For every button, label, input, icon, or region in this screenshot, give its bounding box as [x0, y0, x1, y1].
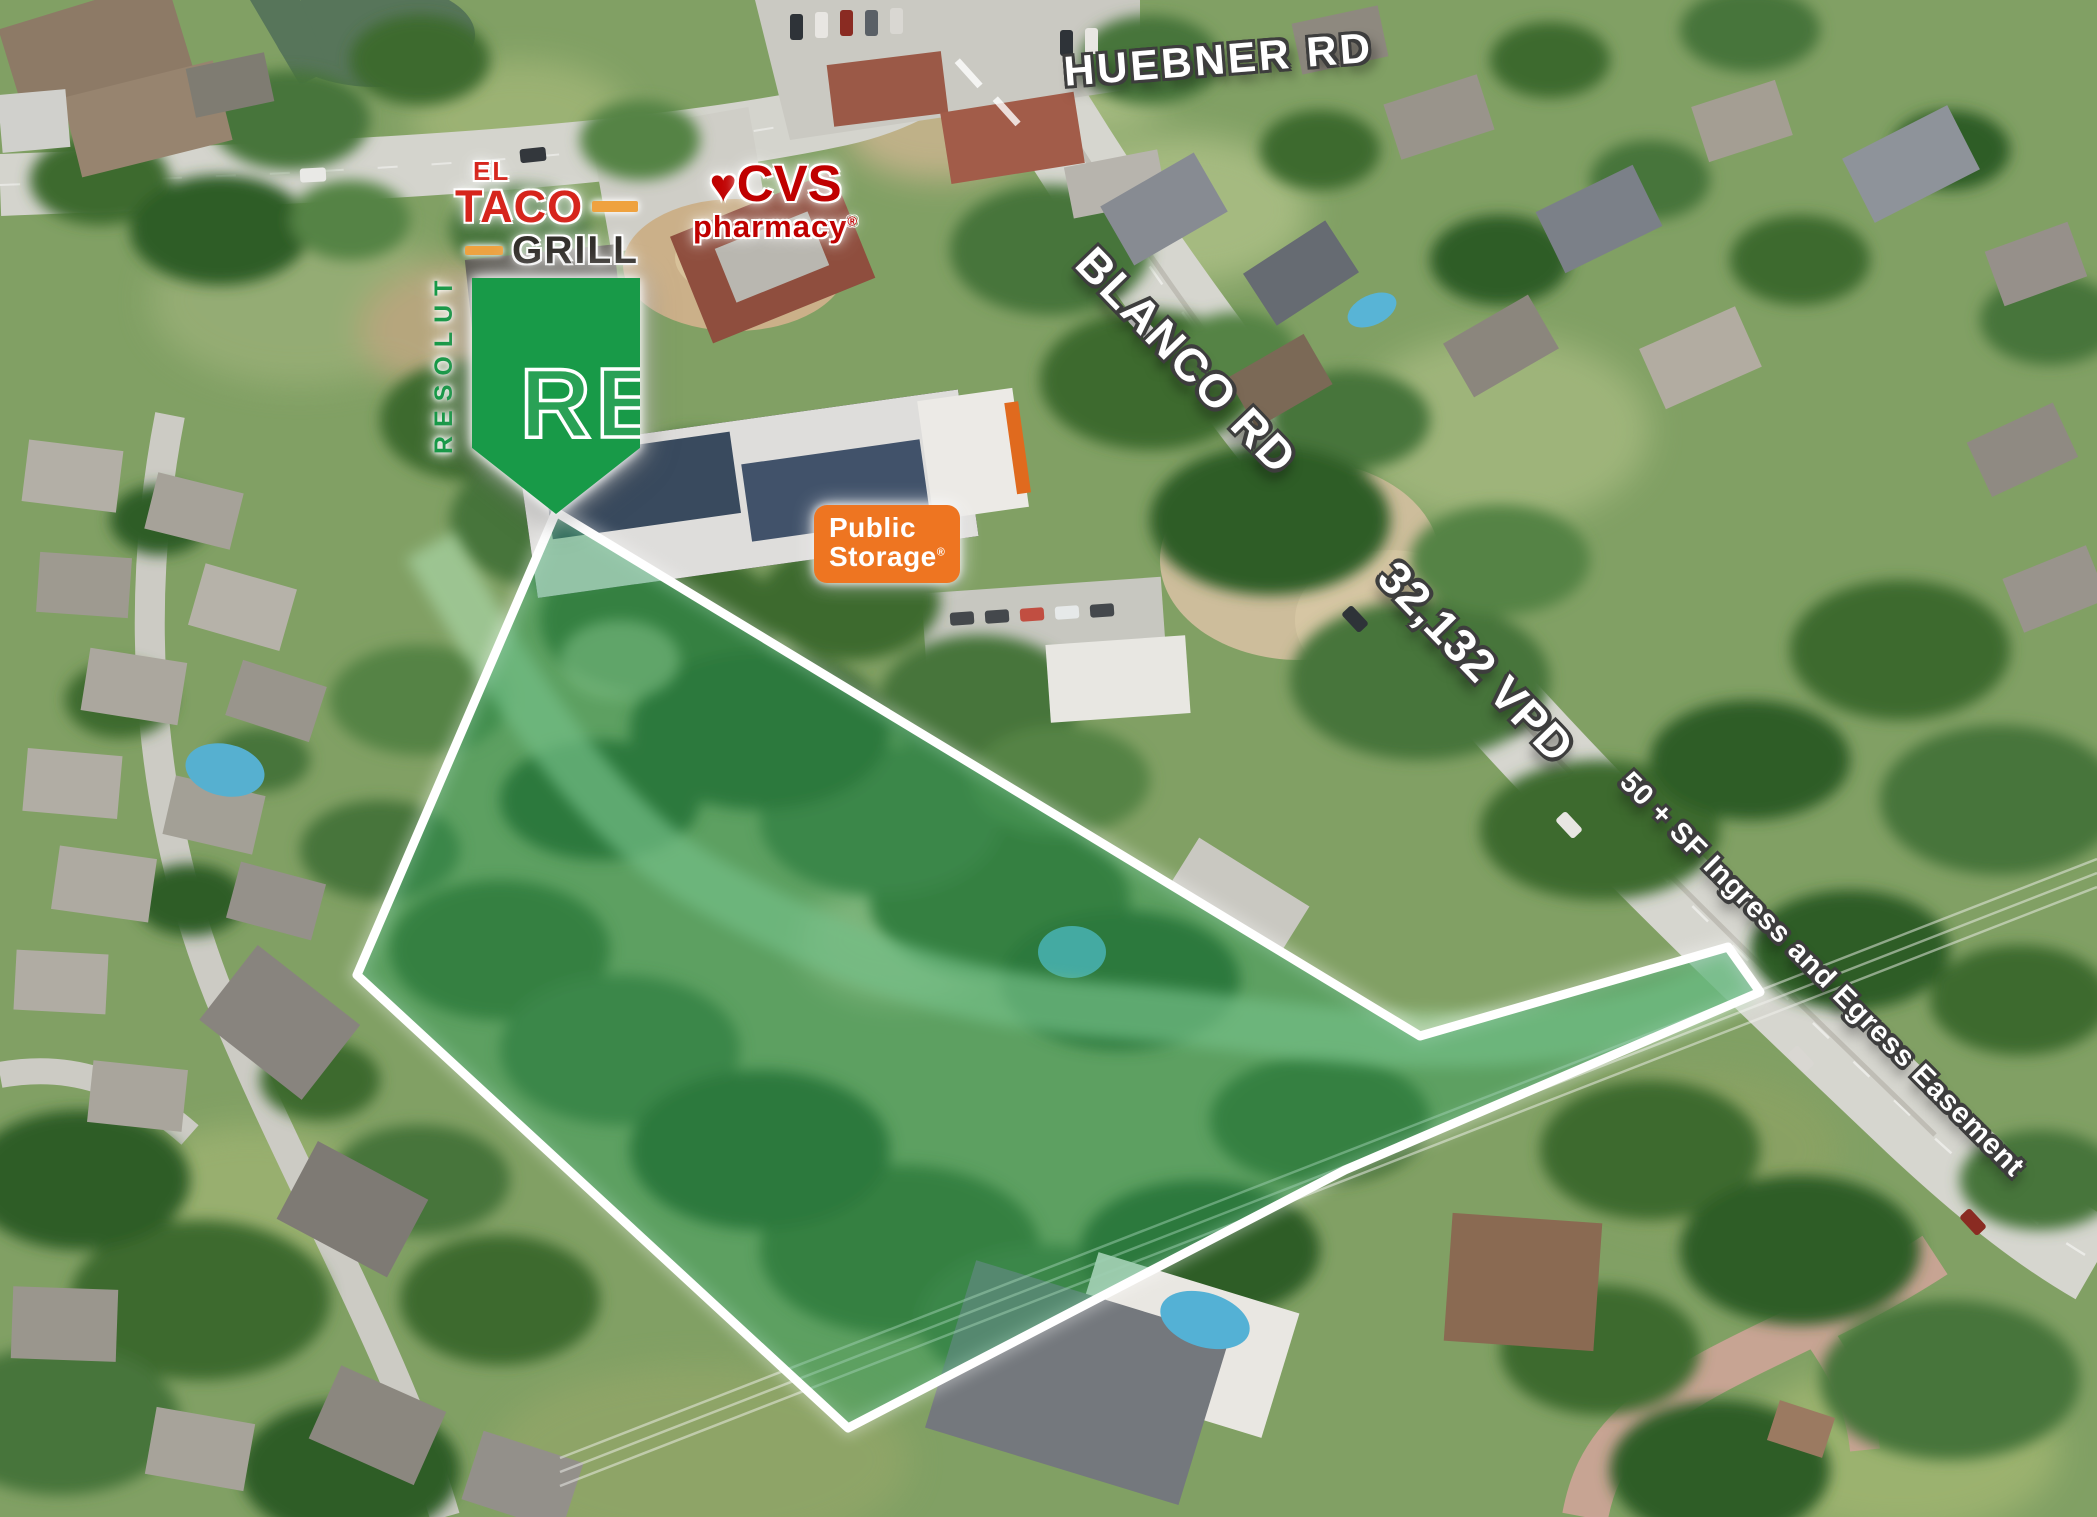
cvs-pharmacy-text: pharmacy	[693, 209, 847, 244]
cvs-heart-icon: ♥	[709, 159, 736, 211]
el-taco-grill-logo: EL TACO GRILL	[455, 158, 639, 270]
taco-orange-bar-icon	[592, 201, 638, 212]
grill-text: GRILL	[512, 231, 639, 270]
resolut-monogram: RE	[520, 354, 666, 452]
public-storage-line2: Storage	[829, 541, 937, 572]
public-storage-line1: Public	[829, 512, 916, 543]
taco-text: TACO	[455, 184, 583, 229]
cvs-name-text: CVS	[737, 155, 842, 212]
public-storage-logo: Public Storage®	[814, 505, 960, 583]
cvs-registered-mark: ®	[847, 214, 858, 229]
aerial-map: HUEBNER RD BLANCO RD 32,132 VPD 50 + SF …	[0, 0, 2097, 1517]
grill-orange-bar-icon	[465, 246, 503, 255]
aerial-photo-background	[0, 0, 2097, 1517]
resolut-re-pin-marker: RESOLUT RE	[428, 270, 668, 540]
map-pin-icon: RE	[472, 278, 640, 514]
public-storage-registered-mark: ®	[937, 547, 946, 559]
pin-glow: RE	[428, 270, 668, 540]
cvs-pharmacy-logo: ♥CVS pharmacy®	[693, 160, 858, 242]
